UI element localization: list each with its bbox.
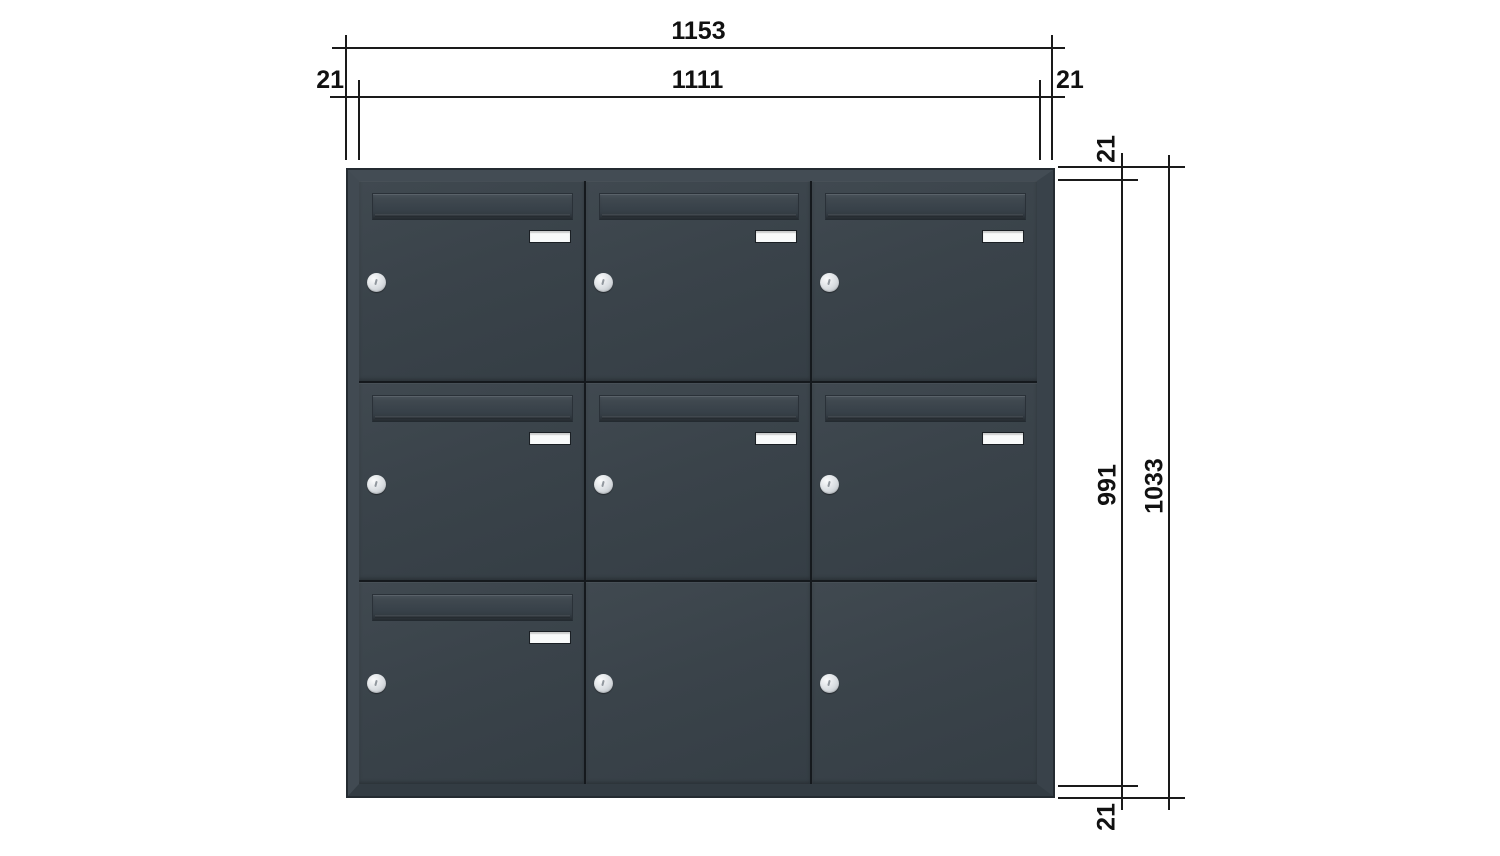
mail-flap[interactable] (599, 395, 800, 422)
lock-cylinder-icon[interactable] (594, 273, 613, 292)
mail-flap[interactable] (825, 395, 1026, 422)
mailbox-door-r1c3[interactable] (812, 181, 1037, 381)
dim-label-left-frame: 21 (292, 68, 344, 93)
extension-line (1058, 166, 1185, 168)
mailbox-door-r2c1[interactable] (359, 383, 584, 580)
extension-line (1051, 35, 1053, 160)
mailbox-door-r1c2[interactable] (586, 181, 811, 381)
mail-flap[interactable] (372, 395, 573, 422)
nameplate (982, 230, 1024, 243)
mail-flap[interactable] (372, 193, 573, 220)
dim-label-overall-height: 1033 (1143, 458, 1168, 514)
lock-cylinder-icon[interactable] (594, 475, 613, 494)
extension-line (1058, 785, 1138, 787)
dim-label-inner-width: 1111 (330, 68, 1065, 93)
lock-cylinder-icon[interactable] (820, 273, 839, 292)
nameplate (529, 230, 571, 243)
lock-cylinder-icon[interactable] (367, 674, 386, 693)
dimension-line-inner-width (330, 96, 1065, 98)
nameplate (529, 432, 571, 445)
mail-flap[interactable] (825, 193, 1026, 220)
dim-label-right-frame: 21 (1056, 68, 1116, 93)
extension-line (358, 80, 360, 160)
dim-label-inner-height: 991 (1096, 464, 1121, 506)
mail-flap[interactable] (599, 193, 800, 220)
dim-label-frame-bottom: 21 (1095, 803, 1120, 831)
lock-cylinder-icon[interactable] (367, 475, 386, 494)
dim-label-frame-top: 21 (1095, 135, 1120, 163)
mailbox-door-r3c3[interactable] (812, 582, 1037, 784)
lock-cylinder-icon[interactable] (594, 674, 613, 693)
technical-drawing: 1153 1111 21 21 21 991 1033 21 (0, 0, 1500, 856)
mailbox-door-r3c1[interactable] (359, 582, 584, 784)
mailbox-grid (359, 181, 1037, 784)
mailbox-cabinet (346, 168, 1055, 798)
dimension-line-overall-width (332, 47, 1065, 49)
dim-label-overall-width: 1153 (332, 19, 1065, 44)
nameplate (755, 432, 797, 445)
nameplate (755, 230, 797, 243)
nameplate (982, 432, 1024, 445)
lock-cylinder-icon[interactable] (367, 273, 386, 292)
mailbox-door-r1c1[interactable] (359, 181, 584, 381)
lock-cylinder-icon[interactable] (820, 475, 839, 494)
extension-line (1058, 797, 1185, 799)
mailbox-door-r2c3[interactable] (812, 383, 1037, 580)
mailbox-door-r2c2[interactable] (586, 383, 811, 580)
extension-line (1039, 80, 1041, 160)
lock-cylinder-icon[interactable] (820, 674, 839, 693)
extension-line (1058, 179, 1138, 181)
extension-line (345, 35, 347, 160)
cabinet-frame (348, 170, 1053, 796)
mailbox-door-r3c2[interactable] (586, 582, 811, 784)
mail-flap[interactable] (372, 594, 573, 621)
nameplate (529, 631, 571, 644)
